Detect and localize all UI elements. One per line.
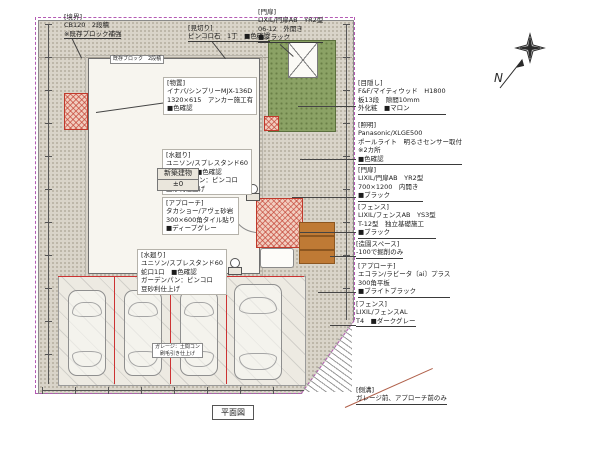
north-compass-icon: N: [490, 12, 554, 100]
storage-shed: [64, 93, 88, 130]
leader-fence-ab: [300, 232, 356, 233]
label-line: ■ブライトブラック: [358, 287, 450, 295]
post-light-base: [264, 116, 279, 131]
label-gate-top: [門扉] LIXIL/門扉AB YR2型 06-12 外開き ■ブラック: [258, 8, 323, 43]
entry-step: [260, 248, 294, 268]
label-gate-right: [門扉] LIXIL/門扉AB YR2型 700×1200 内開き ■ブラック: [358, 166, 423, 202]
strip-note-line: 既存ブロック 2段積: [113, 56, 161, 63]
garage-note: ガレージ：土間コン 刷毛引き仕上げ: [152, 343, 203, 358]
label-mizumawari-2: [水廻り] ユニソン/スプレスタンド60 蛇口1口 ■色確認 ガーデンパン：ピン…: [137, 249, 227, 295]
label-line: ■色確認: [167, 104, 253, 112]
leader-garden: [330, 256, 356, 257]
car-outline-4: [234, 284, 282, 380]
parking-divider-1: [114, 276, 115, 384]
boundary-line-left: [35, 17, 36, 393]
leader-lighting: [300, 159, 356, 160]
label-line: [照明]: [358, 121, 462, 129]
label-shed: [物置] イナバ/シンプリーMJX-136D 1320×615 アンカー施工有 …: [163, 77, 257, 115]
dimension-ticks-right: [343, 24, 350, 320]
label-line: ※既存ブロック補強: [64, 30, 121, 39]
label-approach-right: [アプローチ] エコラン/ラビータ〔ai〕プラス 300角平板 ■ブライトブラッ…: [358, 262, 450, 298]
garage-note-line: ガレージ：土間コン: [155, 344, 200, 351]
dimension-ticks-left: [45, 24, 52, 384]
label-line: LIXIL/フェンスAB YS3型: [358, 211, 436, 219]
label-line: ガーデンパン：ピンコロ: [141, 276, 223, 284]
label-line: LIXIL/門扉AB YR2型: [358, 174, 423, 182]
garden-step-1: [299, 222, 335, 236]
label-line: [物置]: [167, 79, 253, 87]
label-line: CB120 2段積: [64, 21, 121, 29]
compass-n-label: N: [494, 71, 503, 85]
label-lighting: [照明] Panasonic/XLGE500 ポールライト 明るさセンサー取付 …: [358, 121, 462, 165]
label-fence-ab: [フェンス] LIXIL/フェンスAB YS3型 T-12型 独立基礎施工 ■ブ…: [358, 203, 436, 239]
label-line: Panasonic/XLGE500: [358, 129, 462, 137]
label-line: ■ブラック: [358, 191, 423, 199]
car-outline-1: [68, 290, 106, 376]
label-line: ■ブラック: [258, 33, 323, 42]
dimension-ticks-bottom: [42, 387, 304, 394]
label-line: ※2カ所: [358, 146, 462, 154]
label-boundary: [境界] CB120 2段積 ※既存ブロック補強: [64, 13, 121, 39]
label-line: タカショー/アヴェ砂岩: [166, 207, 235, 215]
leader-gate-right: [292, 197, 356, 198]
label-line: 豆砂利仕上げ: [141, 285, 223, 293]
building-tag-name: 新築建物: [158, 169, 198, 179]
label-line: ガレージ前、アプローチ前のみ: [356, 394, 447, 402]
label-line: [目隠し]: [358, 79, 446, 87]
label-mekakushi: [目隠し] F&F/マイティウッド H1800 板13段 隙間10mm 外化粧 …: [358, 79, 446, 115]
label-line: ユニソン/スプレスタンド60: [166, 159, 248, 167]
label-line: ■ディープグレー: [166, 224, 235, 232]
gate-panel: [288, 42, 318, 78]
label-line: 外化粧 ■マロン: [358, 104, 446, 112]
strip-note: 既存ブロック 2段積: [110, 55, 164, 64]
label-line: ■色確認: [358, 155, 462, 163]
label-line: ユニソン/スプレスタンド60: [141, 259, 223, 267]
label-line: ■ブラック: [358, 228, 436, 236]
garden-step-3: [299, 250, 335, 264]
label-line: エコラン/ラビータ〔ai〕プラス: [358, 270, 450, 278]
label-line: [フェンス]: [356, 300, 416, 308]
car-outline-3: [180, 290, 218, 376]
building-tag-level: ±0: [158, 179, 198, 190]
boundary-line-right: [354, 17, 355, 320]
label-line: T4 ■ダークグレー: [356, 317, 416, 325]
label-line: LIXIL/フェンスAL: [356, 308, 416, 316]
leader-fence-al: [330, 325, 356, 326]
label-garden-space: [造園スペース] -100で掘削のみ: [356, 240, 403, 259]
leader-approach-right: [318, 292, 356, 293]
garden-step-2: [299, 236, 335, 250]
car-outline-2: [124, 290, 162, 376]
site-plan-sheet: [境界] CB120 2段積 ※既存ブロック補強 [見切り] ピンコロ石 1丁 …: [0, 0, 600, 450]
label-line: LIXIL/門扉AB YR2型: [258, 16, 323, 24]
leader-mekakushi: [298, 106, 356, 107]
garden-pan-2: [228, 267, 242, 275]
building-tag: 新築建物 ±0: [157, 168, 199, 191]
sheet-title: 平面図: [212, 405, 254, 420]
label-line: イナバ/シンプリーMJX-136D: [167, 87, 253, 95]
label-approach-main: [アプローチ] タカショー/アヴェ砂岩 300×600角タイル貼り ■ディープグ…: [162, 197, 239, 235]
garage-note-line: 刷毛引き仕上げ: [155, 351, 200, 358]
label-fence-al: [フェンス] LIXIL/フェンスAL T4 ■ダークグレー: [356, 300, 416, 327]
approach-tile-area: [256, 198, 303, 248]
label-line: -100で掘削のみ: [356, 248, 403, 256]
label-gutter: [側溝] ガレージ前、アプローチ前のみ: [356, 386, 447, 405]
label-line: F&F/マイティウッド H1800: [358, 87, 446, 95]
